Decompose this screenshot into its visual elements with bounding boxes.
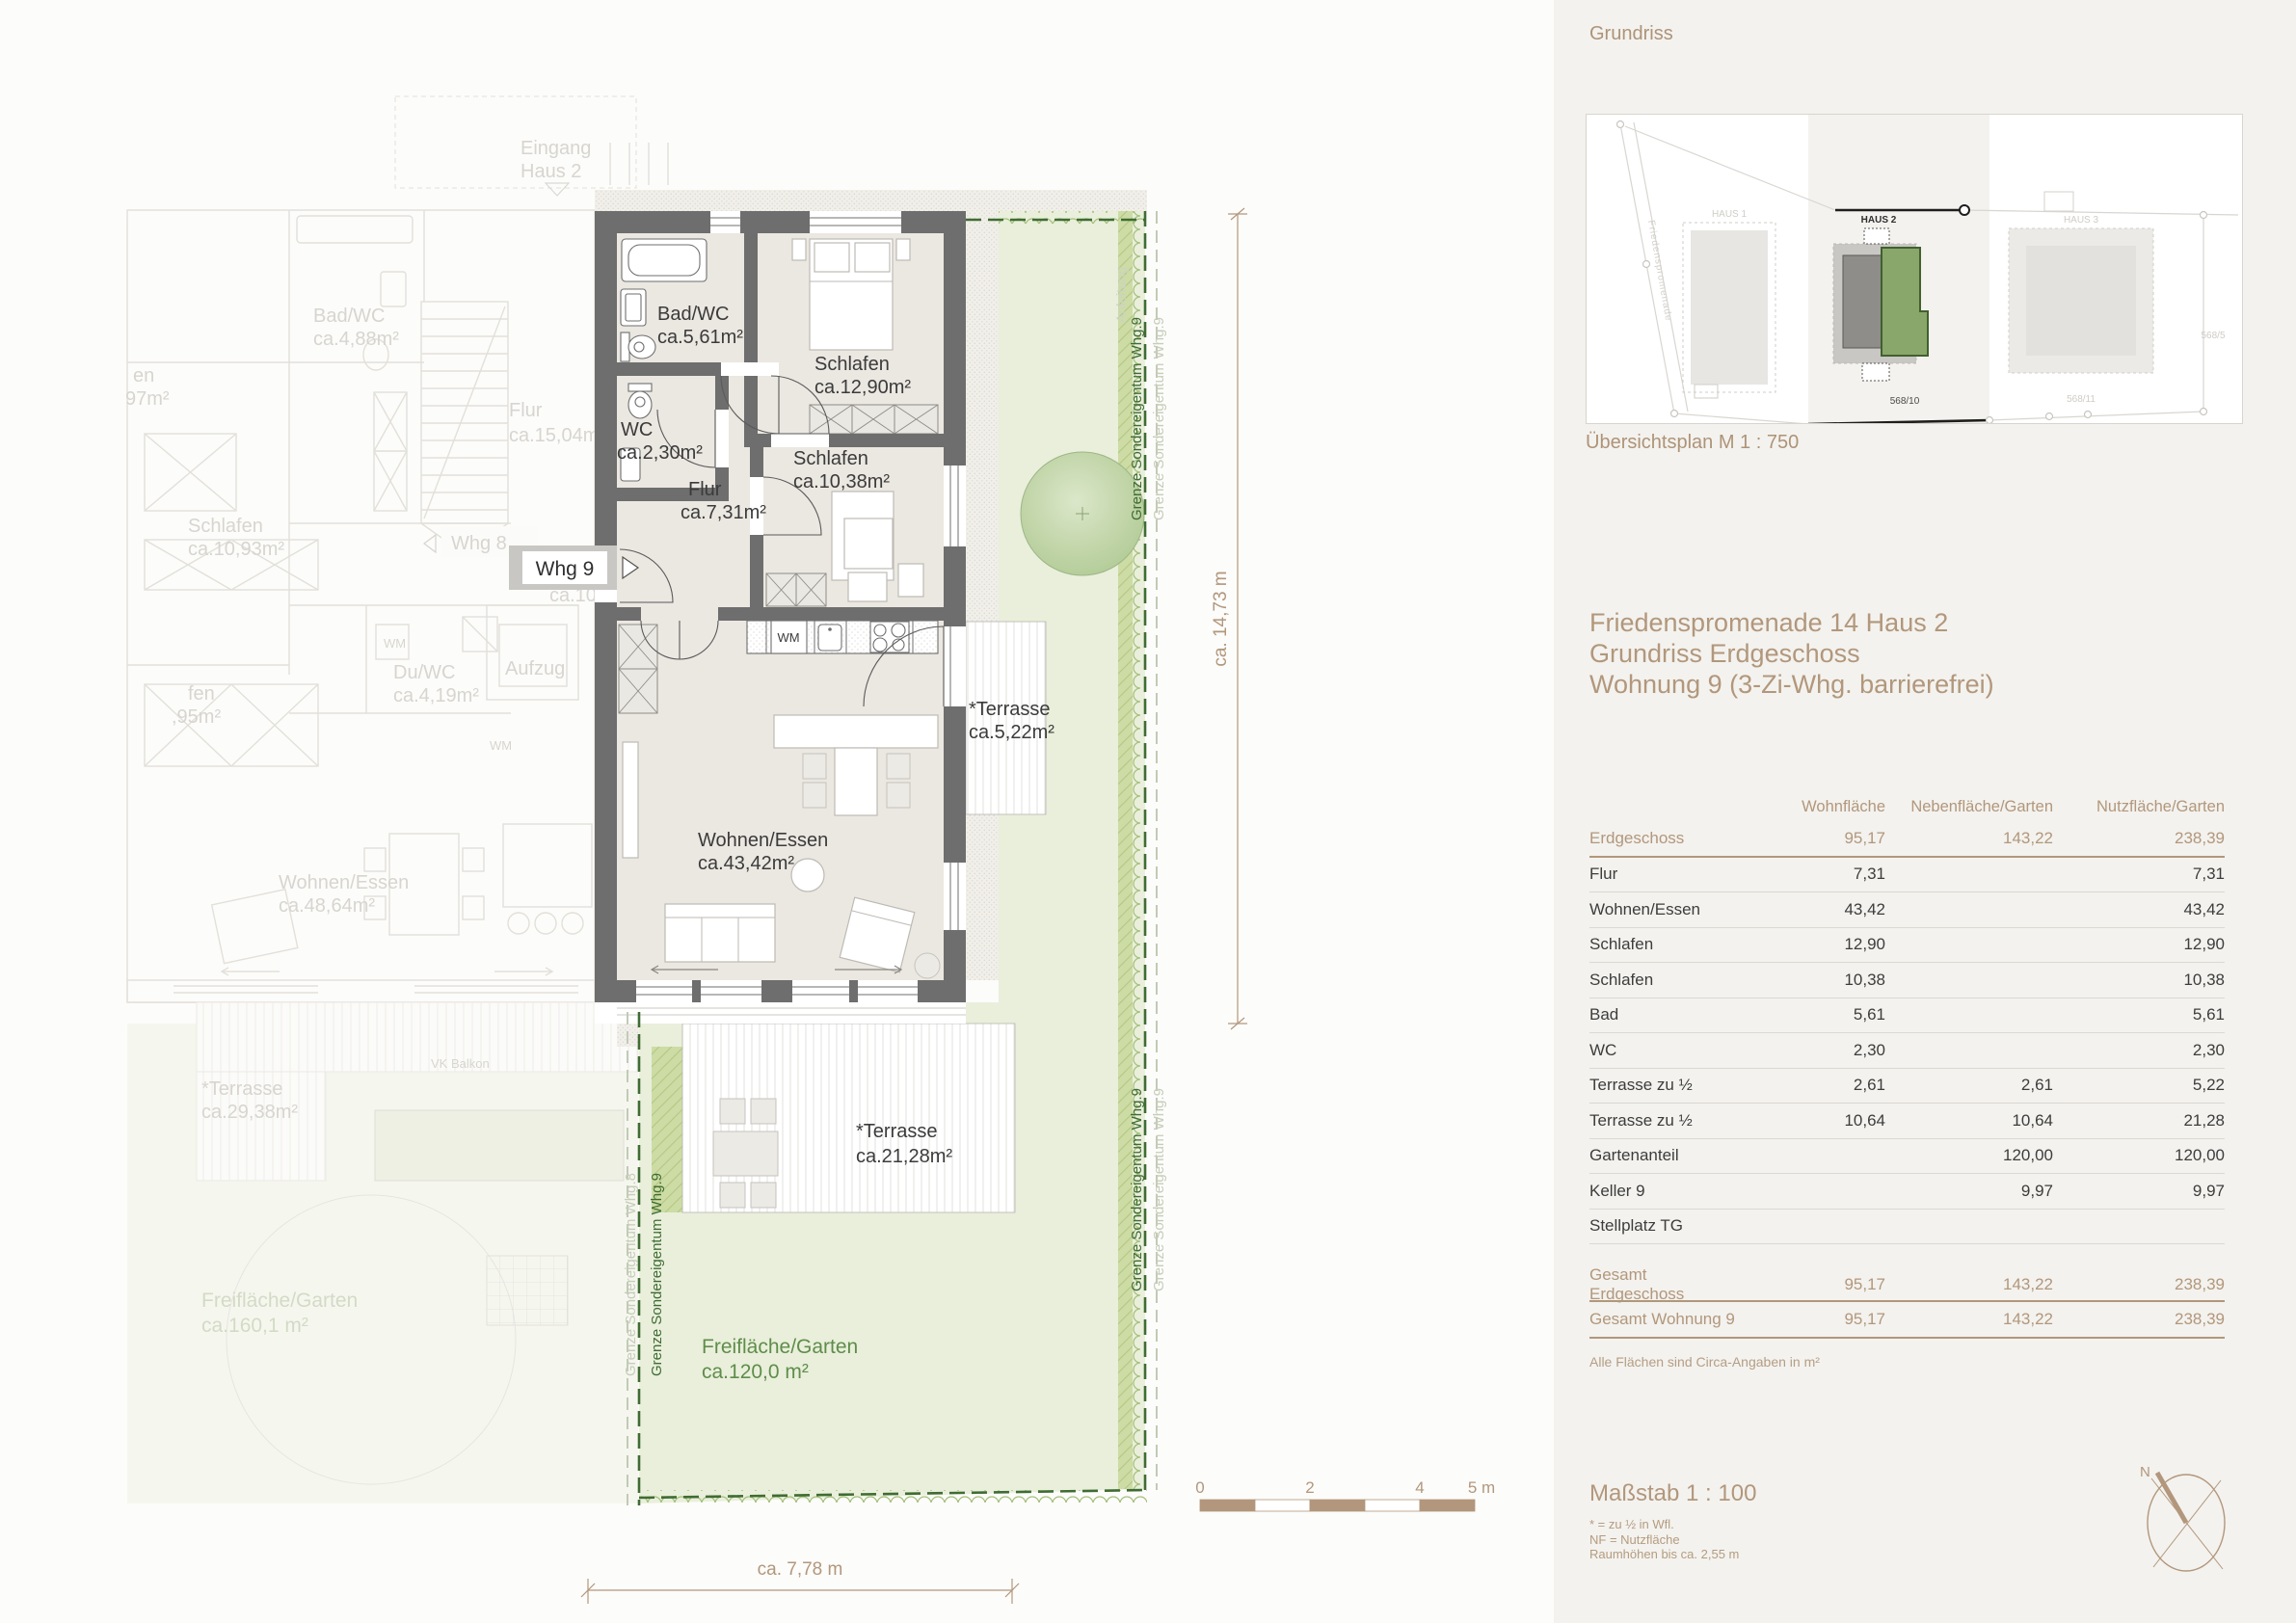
garden-label: Freifläche/Garten — [702, 1336, 858, 1358]
street-label: Friedenspromenade — [1645, 220, 1673, 323]
svg-text:Whg 9: Whg 9 — [536, 558, 595, 580]
svg-text:ca.43,42m²: ca.43,42m² — [698, 853, 794, 874]
floor-plan-drawing: Eingang Haus 2 — [0, 0, 1554, 1623]
svg-text:HAUS 3: HAUS 3 — [2064, 215, 2099, 226]
table-row-total: Gesamt Wohnung 995,17143,22238,39 — [1589, 1302, 2225, 1339]
svg-text:HAUS 1: HAUS 1 — [1712, 209, 1748, 220]
svg-text:fen: fen — [188, 683, 215, 705]
svg-text:Haus 2: Haus 2 — [521, 161, 581, 182]
svg-text:Whg 8: Whg 8 — [451, 533, 507, 554]
table-row: Terrasse zu ½10,6410,6421,28 — [1589, 1104, 2225, 1139]
svg-text:,95m²: ,95m² — [172, 706, 221, 728]
svg-text:ca.120,0 m²: ca.120,0 m² — [702, 1361, 809, 1383]
svg-text:ca.48,64m²: ca.48,64m² — [279, 895, 375, 917]
floor-plan-sheet: Eingang Haus 2 — [0, 0, 2296, 1623]
compass-icon: N — [2136, 1459, 2242, 1580]
room-label-wc: WC — [621, 419, 653, 440]
svg-text:HAUS 2: HAUS 2 — [1861, 215, 1897, 226]
table-row: Flur7,317,31 — [1589, 858, 2225, 893]
table-row: Schlafen10,3810,38 — [1589, 963, 2225, 998]
table-row: Terrasse zu ½2,612,615,22 — [1589, 1069, 2225, 1104]
hall-wardrobe — [619, 625, 657, 713]
svg-text:568/5: 568/5 — [2201, 331, 2225, 341]
floor-plan-svg: Eingang Haus 2 — [0, 0, 1554, 1623]
room-label-bad: Bad/WC — [657, 304, 729, 325]
svg-text:ca. 7,78 m: ca. 7,78 m — [758, 1559, 843, 1580]
svg-text:Grenze Sondereigentum Whg.9: Grenze Sondereigentum Whg.9 — [1151, 1088, 1167, 1291]
scale-notes: * = zu ½ in Wfl. NF = Nutzfläche Raumhöh… — [1589, 1517, 1739, 1562]
table-row-total: Gesamt Erdgeschoss95,17143,22238,39 — [1589, 1265, 2225, 1302]
svg-text:0: 0 — [1195, 1478, 1204, 1497]
svg-text:ca.160,1 m²: ca.160,1 m² — [201, 1315, 308, 1337]
table-row: Bad5,615,61 — [1589, 998, 2225, 1034]
room-label-schlafen1: Schlafen — [814, 354, 890, 375]
room-label-flur: Flur — [688, 479, 722, 500]
room-label-wohnen: Wohnen/Essen — [698, 830, 828, 851]
terrace-large-label: *Terrasse — [856, 1121, 937, 1142]
svg-text:2: 2 — [1305, 1478, 1314, 1497]
table-row: Schlafen12,9012,90 — [1589, 928, 2225, 964]
svg-text:Schlafen: Schlafen — [188, 516, 263, 537]
table-row: Gartenanteil120,00120,00 — [1589, 1139, 2225, 1175]
overview-siteplan: Friedenspromenade HAUS 1 HAUS 2 568/10 H… — [1586, 114, 2243, 424]
svg-text:Flur: Flur — [509, 400, 543, 421]
room-label-schlafen2: Schlafen — [793, 448, 868, 469]
nb-room-label: Bad/WC — [313, 306, 385, 327]
table-footnote: Alle Flächen sind Circa-Angaben in m² — [1589, 1354, 2225, 1370]
table-row: Wohnen/Essen43,4243,42 — [1589, 892, 2225, 928]
svg-text:Grenze Sondereigentum Whg.9: Grenze Sondereigentum Whg.9 — [649, 1173, 665, 1376]
svg-text:Grenze Sondereigentum Whg.9: Grenze Sondereigentum Whg.9 — [1129, 1088, 1145, 1291]
table-row: Stellplatz TG — [1589, 1210, 2225, 1245]
boundary-label: Grenze Sondereigentum Whg.9 — [1129, 317, 1145, 520]
panel-title: Grundriss — [1589, 23, 1673, 45]
svg-text:Freifläche/Garten: Freifläche/Garten — [201, 1290, 358, 1312]
table-row-section: Erdgeschoss 95,17 143,22 238,39 — [1589, 821, 2225, 858]
svg-text:Grenze Sondereigentum Whg.9: Grenze Sondereigentum Whg.9 — [1151, 317, 1167, 520]
svg-text:ca.10,38m²: ca.10,38m² — [793, 471, 890, 492]
svg-text:*Terrasse: *Terrasse — [201, 1078, 282, 1100]
svg-text:ca.10,93m²: ca.10,93m² — [188, 539, 284, 560]
svg-text:ca.4,88m²: ca.4,88m² — [313, 329, 399, 350]
svg-text:WM: WM — [384, 636, 406, 651]
terrace-large: *Terrasse ca.21,28m² — [682, 1024, 1015, 1212]
sheet-heading: Friedenspromenade 14 Haus 2 Grundriss Er… — [1589, 607, 1994, 700]
svg-text:ca.5,22m²: ca.5,22m² — [969, 722, 1055, 743]
table-header: Wohnfläche Nebenfläche/Garten Nutzfläche… — [1589, 792, 2225, 821]
overview-caption: Übersichtsplan M 1 : 750 — [1586, 432, 1799, 454]
table-row: WC2,302,30 — [1589, 1033, 2225, 1069]
svg-text:568/10: 568/10 — [1890, 396, 1920, 407]
svg-text:ca. 14,73 m: ca. 14,73 m — [1211, 571, 1231, 666]
svg-text:WM: WM — [490, 738, 512, 753]
room-label-terrasse-klein: *Terrasse — [969, 699, 1050, 720]
svg-text:ca.7,31m²: ca.7,31m² — [681, 502, 766, 523]
svg-text:en: en — [133, 365, 154, 386]
svg-text:5 m: 5 m — [1468, 1478, 1495, 1497]
info-panel: Grundriss Friedenspromena — [1554, 0, 2296, 1623]
svg-text:97m²: 97m² — [125, 388, 170, 410]
svg-text:ca.2,30m²: ca.2,30m² — [617, 442, 703, 464]
svg-text:Du/WC: Du/WC — [393, 662, 455, 683]
svg-text:568/11: 568/11 — [2067, 394, 2096, 405]
svg-text:N: N — [2140, 1464, 2150, 1480]
label-eingang: Eingang — [521, 138, 591, 159]
svg-text:ca.15,04m²: ca.15,04m² — [509, 425, 605, 446]
svg-text:Anleitung: Anleitung — [1113, 267, 1129, 323]
svg-text:ca.12,90m²: ca.12,90m² — [814, 377, 911, 398]
area-table: Wohnfläche Nebenfläche/Garten Nutzfläche… — [1589, 792, 2225, 1370]
svg-text:Aufzug: Aufzug — [505, 658, 565, 679]
kitchen-counter: WM — [747, 621, 938, 653]
svg-text:Grenze Sondereigentum Whg.8: Grenze Sondereigentum Whg.8 — [623, 1173, 639, 1376]
svg-text:4: 4 — [1415, 1478, 1424, 1497]
table-row: Keller 99,979,97 — [1589, 1174, 2225, 1210]
svg-text:ca.5,61m²: ca.5,61m² — [657, 327, 743, 348]
svg-text:ca.4,19m²: ca.4,19m² — [393, 685, 479, 706]
svg-text:ca.29,38m²: ca.29,38m² — [201, 1102, 298, 1123]
svg-text:ca.21,28m²: ca.21,28m² — [856, 1146, 952, 1167]
wm-label: WM — [777, 630, 799, 645]
scale-title: Maßstab 1 : 100 — [1589, 1480, 1756, 1507]
svg-text:VK Balkon: VK Balkon — [431, 1056, 490, 1071]
svg-text:Wohnen/Essen: Wohnen/Essen — [279, 872, 409, 893]
